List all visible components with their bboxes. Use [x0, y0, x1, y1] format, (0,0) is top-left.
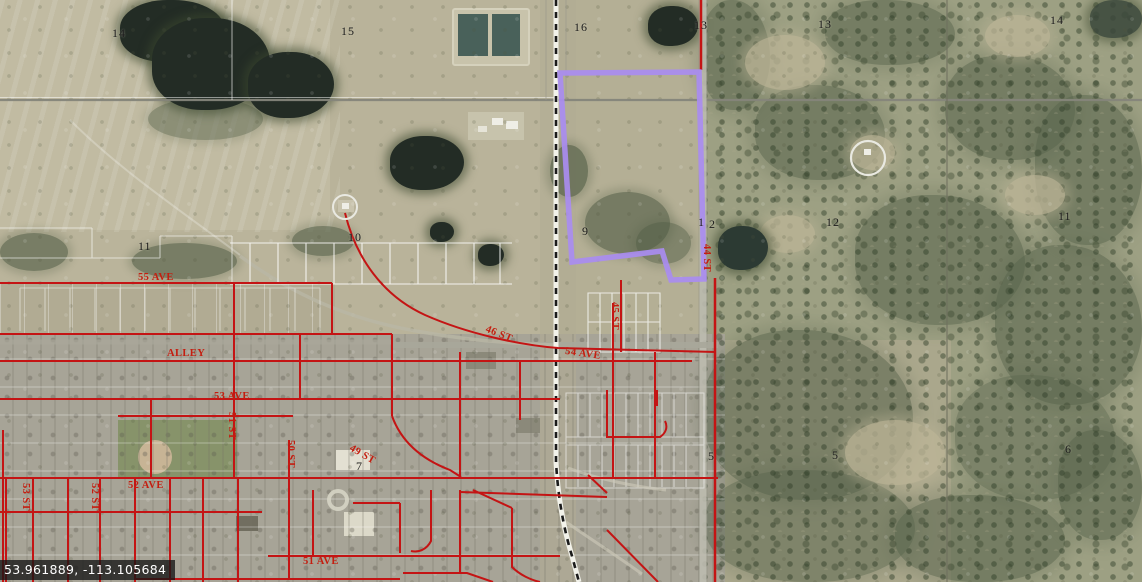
gis-overlay-layer: [0, 0, 1142, 582]
map-canvas[interactable]: 14151613131411109121211755655 AVEALLEY53…: [0, 0, 1142, 582]
site-circle-icon: [333, 141, 885, 219]
red-road-network: [0, 0, 718, 582]
selected-parcel-outline[interactable]: [560, 72, 704, 280]
gray-road-network: [0, 0, 1142, 582]
coordinate-readout: 53.961889, -113.105684: [0, 560, 175, 580]
parcel-line-network: [0, 0, 704, 574]
